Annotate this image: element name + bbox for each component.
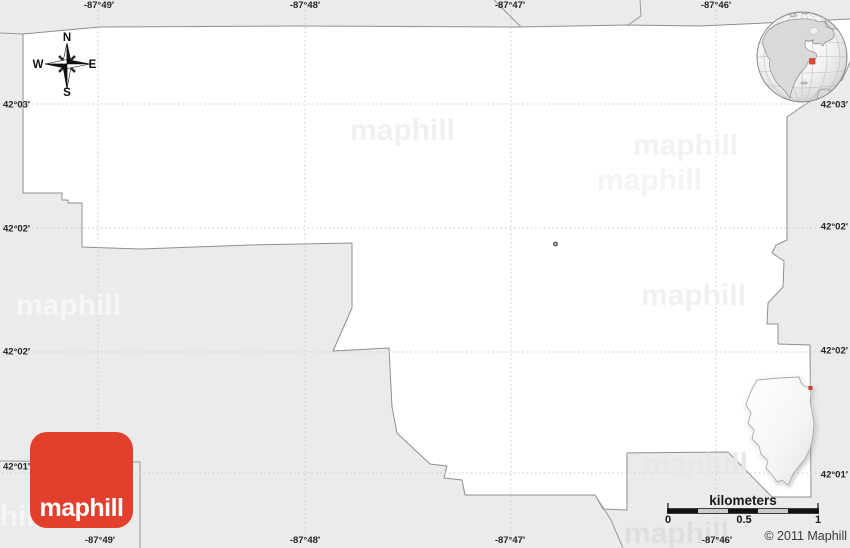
scale-bar-title: kilometers — [709, 493, 777, 508]
longitude-label-bottom: -87°48' — [290, 536, 320, 546]
latitude-label-left: 42°03' — [3, 100, 30, 110]
latitude-label-right: 42°02' — [821, 222, 848, 232]
longitude-label-top: -87°49' — [84, 1, 114, 11]
maphill-logo[interactable]: maphill — [30, 432, 133, 528]
longitude-label-top: -87°48' — [290, 1, 320, 11]
latitude-label-left: 42°02' — [3, 224, 30, 234]
longitude-label-bottom: -87°46' — [702, 536, 732, 546]
copyright-notice[interactable]: © 2011 Maphill — [764, 529, 847, 543]
latitude-label-left: 42°02' — [3, 347, 30, 357]
compass-rose: N E S W — [33, 32, 97, 99]
scale-tick-label: 0.5 — [736, 514, 751, 526]
state-inset-illinois — [746, 377, 814, 485]
compass-east-label: E — [89, 59, 97, 71]
latitude-label-right: 42°01' — [821, 470, 848, 480]
scale-tick-label: 0 — [665, 514, 671, 526]
latitude-label-left: 42°01' — [3, 462, 30, 472]
longitude-label-top: -87°46' — [701, 1, 731, 11]
maphill-logo-text: maphill — [30, 494, 133, 523]
latitude-label-right: 42°03' — [821, 100, 848, 110]
map-canvas[interactable]: maphillmaphillmaphillmaphillmaphillmaphi… — [0, 0, 850, 548]
longitude-label-bottom: -87°47' — [495, 536, 525, 546]
compass-north-label: N — [63, 32, 71, 44]
longitude-label-top: -87°47' — [495, 1, 525, 11]
latitude-label-right: 42°02' — [821, 346, 848, 356]
longitude-label-bottom: -87°49' — [85, 536, 115, 546]
compass-south-label: S — [63, 87, 71, 99]
compass-west-label: W — [33, 59, 44, 71]
globe-location-marker — [810, 59, 816, 65]
locator-globe — [757, 10, 847, 102]
scale-tick-label: 1 — [815, 514, 821, 526]
inset-location-marker — [809, 386, 812, 389]
